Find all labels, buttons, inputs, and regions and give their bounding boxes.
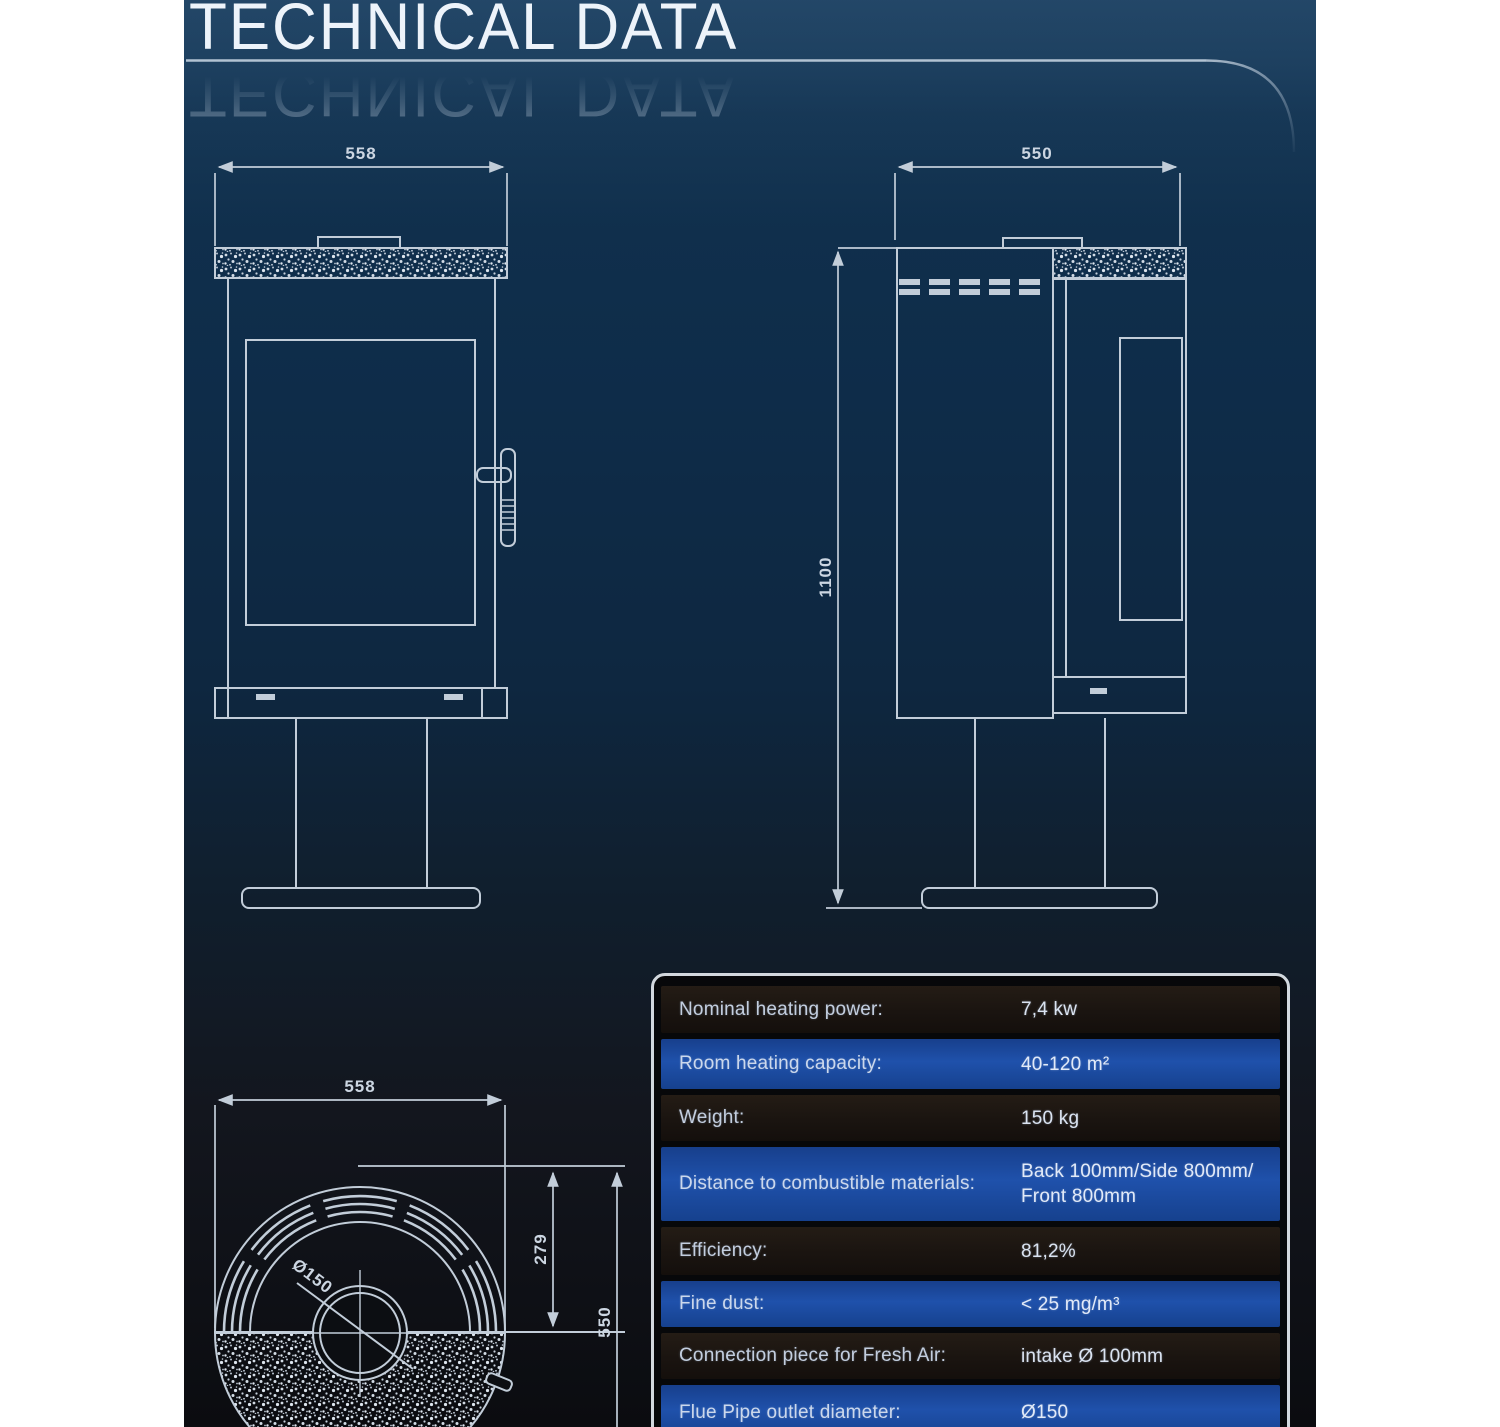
datasheet-page: TECHNICAL DATA TECHNICAL DATA — [0, 0, 1500, 1427]
spec-value: Back 100mm/Side 800mm/ Front 800mm — [1021, 1159, 1280, 1209]
spec-label: Room heating capacity: — [661, 1053, 1021, 1075]
front-view-drawing — [215, 167, 515, 908]
spec-value: < 25 mg/m³ — [1021, 1292, 1280, 1317]
spec-label: Connection piece for Fresh Air: — [661, 1345, 1021, 1367]
spec-row-fresh-air-connection: Connection piece for Fresh Air: intake Ø… — [661, 1333, 1280, 1379]
spec-value: 7,4 kw — [1021, 997, 1280, 1022]
spec-row-weight: Weight: 150 kg — [661, 1095, 1280, 1141]
spec-value: 150 kg — [1021, 1106, 1280, 1131]
top-flue-center-dim-label: 279 — [531, 1233, 550, 1264]
spec-row-nominal-heating-power: Nominal heating power: 7,4 kw — [661, 986, 1280, 1033]
spec-label: Distance to combustible materials: — [661, 1173, 1021, 1195]
spec-label: Nominal heating power: — [661, 999, 1021, 1021]
side-height-dim-label: 1100 — [816, 557, 835, 598]
spec-label: Flue Pipe outlet diameter: — [661, 1402, 1021, 1424]
spec-table: Nominal heating power: 7,4 kw Room heati… — [651, 973, 1290, 1427]
spec-row-room-heating-capacity: Room heating capacity: 40-120 m² — [661, 1039, 1280, 1089]
top-depth-dim-label: 550 — [595, 1306, 614, 1337]
front-width-dim-label: 558 — [345, 144, 376, 163]
side-view-drawing — [826, 167, 1186, 908]
spec-row-flue-pipe-diameter: Flue Pipe outlet diameter: Ø150 — [661, 1385, 1280, 1427]
spec-value: 40-120 m² — [1021, 1052, 1280, 1077]
top-view-drawing — [215, 1100, 625, 1427]
header-swoosh — [186, 61, 1294, 153]
spec-value: Ø150 — [1021, 1400, 1280, 1425]
side-depth-dim-label: 550 — [1021, 144, 1052, 163]
spec-label: Weight: — [661, 1107, 1021, 1129]
spec-value: 81,2% — [1021, 1239, 1280, 1264]
spec-row-distance-to-combustibles: Distance to combustible materials: Back … — [661, 1147, 1280, 1221]
flue-diameter-label: Ø150 — [289, 1255, 337, 1298]
spec-value: intake Ø 100mm — [1021, 1344, 1280, 1369]
spec-row-efficiency: Efficiency: 81,2% — [661, 1227, 1280, 1275]
spec-label: Efficiency: — [661, 1240, 1021, 1262]
spec-label: Fine dust: — [661, 1293, 1021, 1315]
top-width-dim-label: 558 — [344, 1077, 375, 1096]
spec-row-fine-dust: Fine dust: < 25 mg/m³ — [661, 1281, 1280, 1327]
